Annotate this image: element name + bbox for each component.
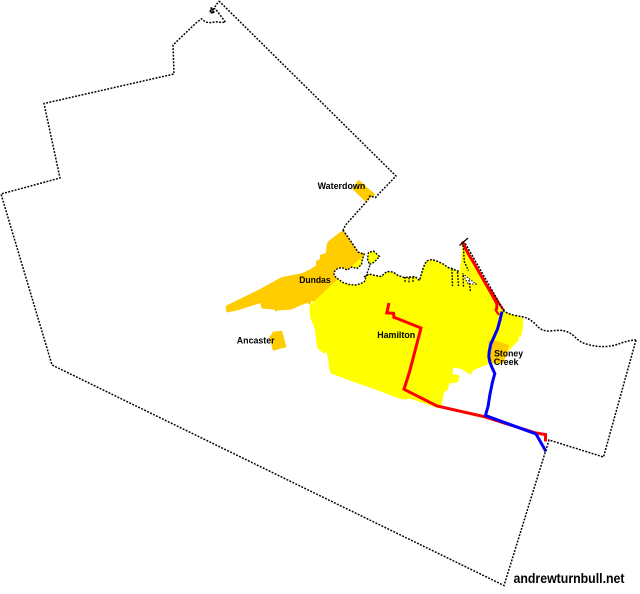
svg-text:Ancaster: Ancaster (237, 336, 275, 347)
svg-text:Creek: Creek (494, 357, 519, 368)
svg-text:andrewturnbull.net: andrewturnbull.net (514, 570, 625, 586)
svg-text:Dundas: Dundas (299, 275, 330, 286)
svg-text:Waterdown: Waterdown (318, 181, 366, 192)
svg-text:Hamilton: Hamilton (377, 330, 415, 341)
